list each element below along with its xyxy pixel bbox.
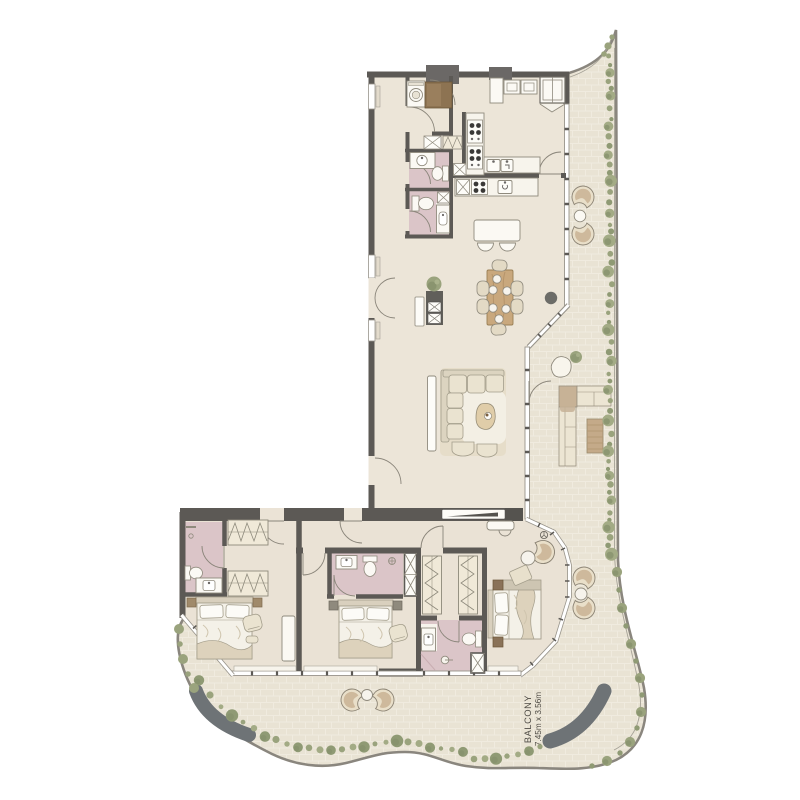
svg-text:7.45m x 3.56m: 7.45m x 3.56m	[534, 692, 543, 746]
svg-text:BALCONY: BALCONY	[523, 695, 533, 743]
